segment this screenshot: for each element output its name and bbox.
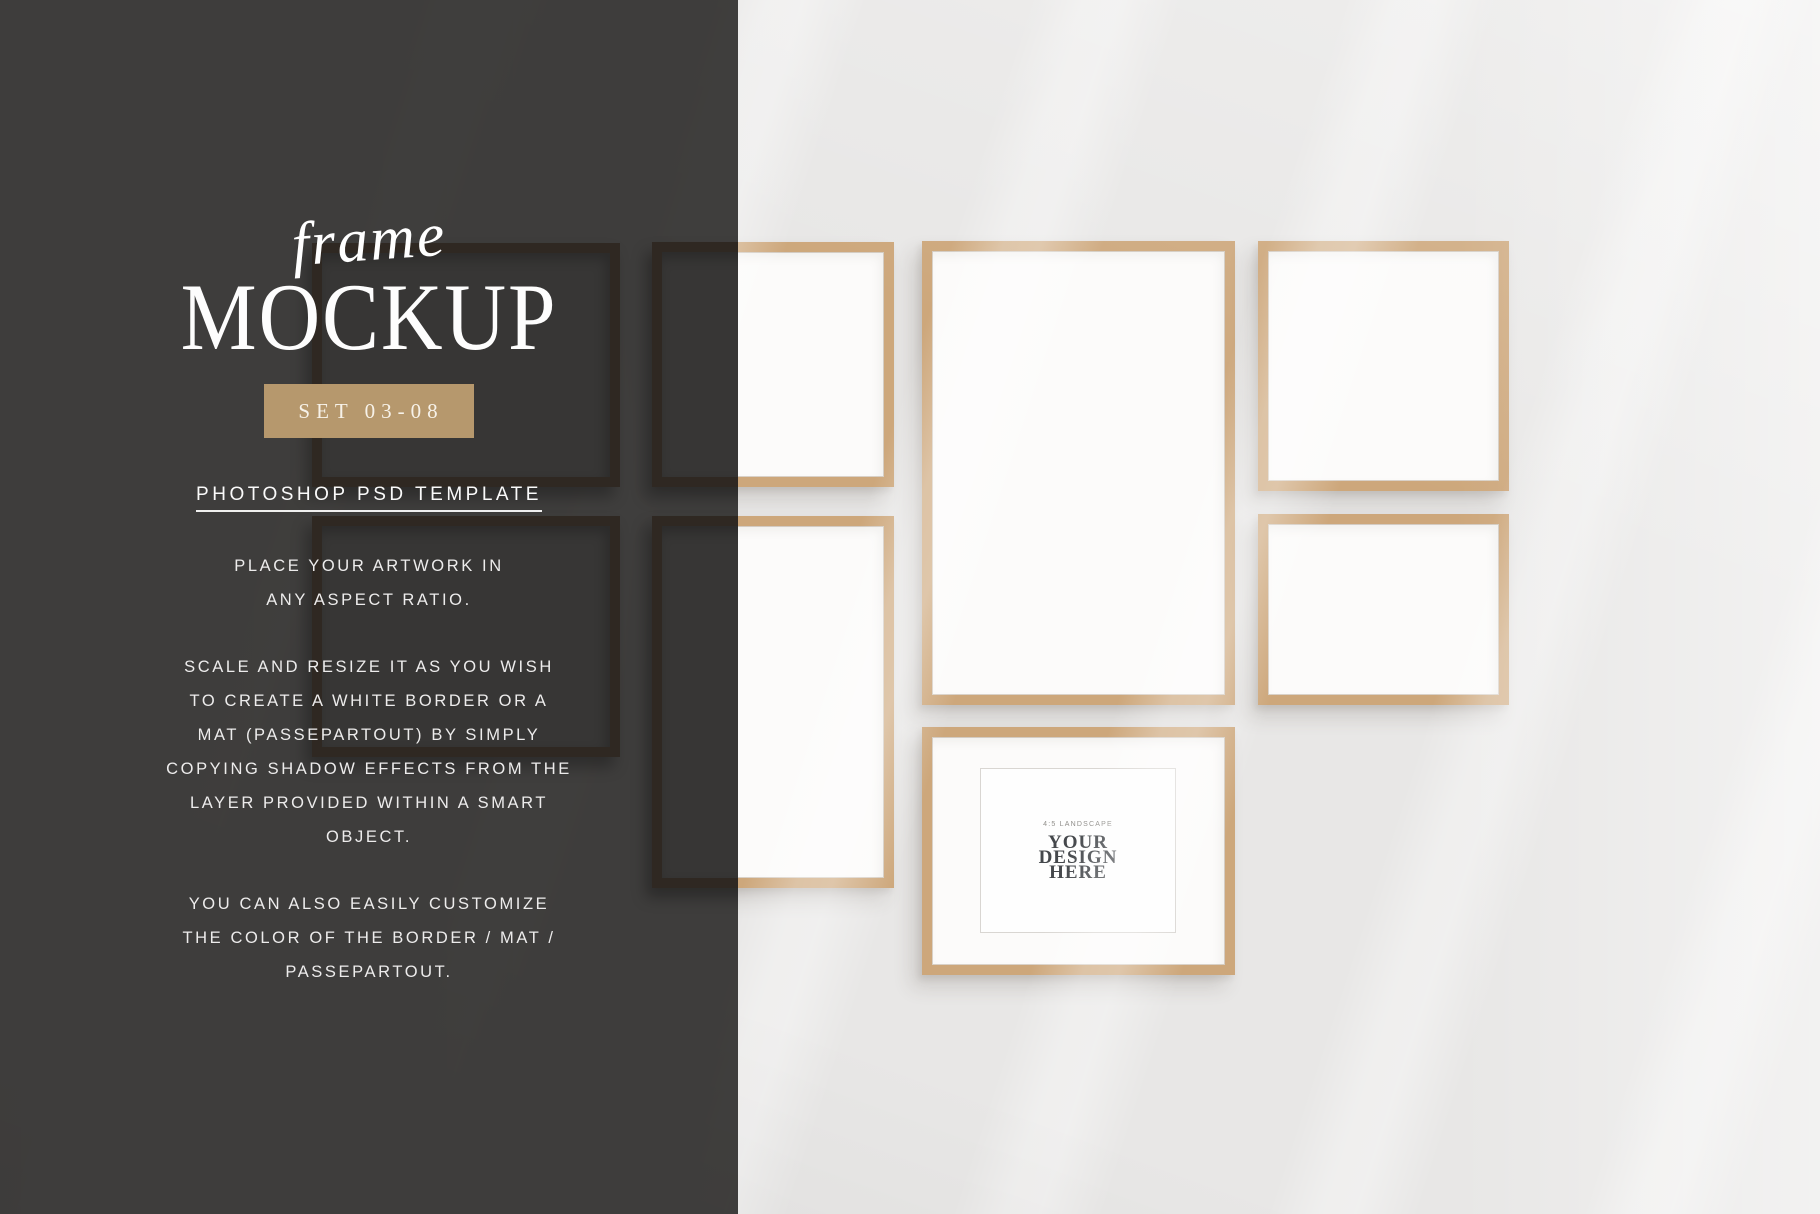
placeholder-line: HERE: [1049, 865, 1107, 880]
paragraph-line: TO CREATE A WHITE BORDER OR A: [0, 684, 738, 718]
paragraph-line: ANY ASPECT RATIO.: [0, 583, 738, 617]
subtitle-row: PHOTOSHOP PSD TEMPLATE: [0, 484, 738, 512]
set-badge: SET 03-08: [264, 384, 473, 438]
gallery-frame-middle-right: [1258, 514, 1509, 705]
paragraph-line: LAYER PROVIDED WITHIN A SMART: [0, 786, 738, 820]
design-placeholder-paper: 4:5 LANDSCAPE YOUR DESIGN HERE: [980, 768, 1176, 933]
paragraph-line: YOU CAN ALSO EASILY CUSTOMIZE: [0, 887, 738, 921]
info-panel-content: frame MOCKUP SET 03-08 PHOTOSHOP PSD TEM…: [0, 0, 738, 1214]
paragraph-line: OBJECT.: [0, 820, 738, 854]
paragraph-aspect-ratio: PLACE YOUR ARTWORK IN ANY ASPECT RATIO.: [0, 549, 738, 617]
paragraph-scale-resize: SCALE AND RESIZE IT AS YOU WISH TO CREAT…: [0, 650, 738, 854]
gallery-frame-center-tall: [922, 241, 1235, 705]
subtitle: PHOTOSHOP PSD TEMPLATE: [196, 484, 542, 512]
set-badge-row: SET 03-08: [0, 384, 738, 438]
paragraph-line: PLACE YOUR ARTWORK IN: [0, 549, 738, 583]
paragraph-customize-color: YOU CAN ALSO EASILY CUSTOMIZE THE COLOR …: [0, 887, 738, 989]
title-main: MOCKUP: [37, 270, 701, 365]
paragraph-line: COPYING SHADOW EFFECTS FROM THE: [0, 752, 738, 786]
paragraph-line: MAT (PASSEPARTOUT) BY SIMPLY: [0, 718, 738, 752]
gallery-frame-bottom-center: 4:5 LANDSCAPE YOUR DESIGN HERE: [922, 727, 1235, 975]
gallery-frame-top-right: [1258, 241, 1509, 491]
mockup-poster: 4:5 LANDSCAPE YOUR DESIGN HERE frame MOC…: [0, 0, 1820, 1214]
aspect-ratio-caption: 4:5 LANDSCAPE: [1043, 821, 1113, 828]
paragraph-line: PASSEPARTOUT.: [0, 955, 738, 989]
paragraph-line: THE COLOR OF THE BORDER / MAT /: [0, 921, 738, 955]
paragraph-line: SCALE AND RESIZE IT AS YOU WISH: [0, 650, 738, 684]
